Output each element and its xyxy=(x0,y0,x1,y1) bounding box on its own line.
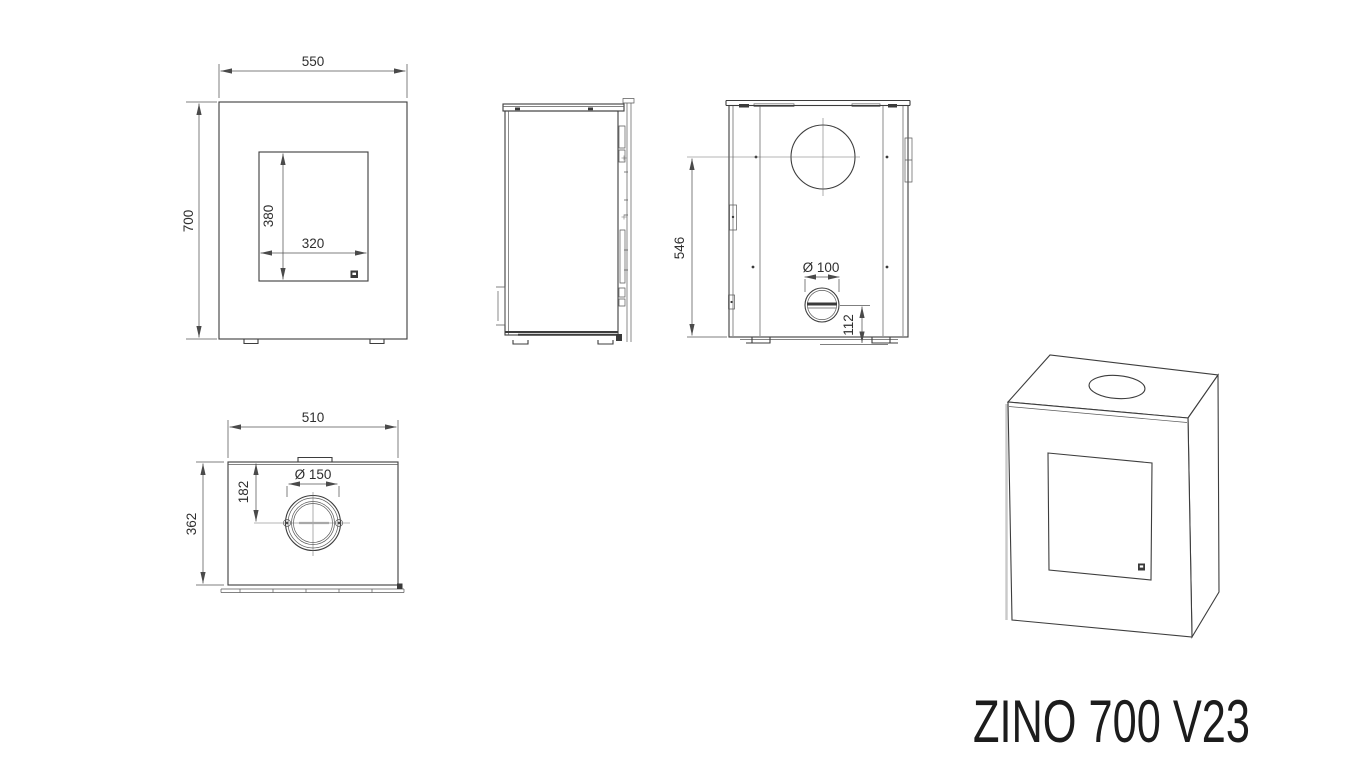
rear-546-dim-text: 546 xyxy=(672,237,687,260)
top-rear-tab xyxy=(298,458,332,463)
top-view: 510 362 182 Ø 150 xyxy=(184,410,404,593)
top-182-dim-text: 182 xyxy=(236,481,251,504)
rear-feet xyxy=(746,337,898,343)
front-view: 550 700 380 320 xyxy=(181,54,407,344)
persp-front-face xyxy=(1008,402,1192,637)
rear-port-dia-ext-lines xyxy=(805,279,839,292)
side-lever-housing xyxy=(496,287,505,325)
rear-bracket-screw xyxy=(732,216,734,218)
top-extension-lines xyxy=(196,420,398,585)
side-body-outline xyxy=(505,111,618,335)
top-base-plate xyxy=(221,589,404,593)
rear-panel-seams xyxy=(733,106,903,336)
side-center-marks xyxy=(622,156,627,220)
rear-bracket-screw2 xyxy=(730,301,732,303)
top-view-dimensions: 510 362 182 Ø 150 xyxy=(184,410,398,585)
rear-port-dia-text: Ø 100 xyxy=(803,260,840,275)
persp-right-face xyxy=(1188,375,1219,637)
front-view-dimensions: 550 700 380 320 xyxy=(181,54,407,339)
brand-logo-mark xyxy=(352,273,356,275)
top-width-dim-text: 510 xyxy=(302,410,325,425)
top-flue-dia-text: Ø 150 xyxy=(295,467,332,482)
rear-view: 546 Ø 100 112 xyxy=(672,101,912,345)
top-base-clip xyxy=(397,584,403,590)
glass-height-dim-text: 380 xyxy=(261,205,276,228)
drawing-sheet: 550 700 380 320 xyxy=(0,0,1372,772)
side-feet xyxy=(513,340,613,344)
rear-top-plate xyxy=(726,101,910,106)
side-top-screws xyxy=(515,108,593,111)
front-width-dim-text: 550 xyxy=(302,54,325,69)
persp-brand-logo-mark xyxy=(1140,565,1143,567)
rear-screw-dot-2 xyxy=(886,156,889,159)
glass-width-dim-text: 320 xyxy=(302,236,325,251)
top-depth-dim-text: 362 xyxy=(184,513,199,536)
perspective-view xyxy=(1007,355,1220,637)
side-rear-foot xyxy=(616,334,622,341)
rear-view-dimensions: 546 Ø 100 112 xyxy=(672,159,888,345)
rear-screw-dot-4 xyxy=(886,266,889,269)
front-body-outline xyxy=(219,102,407,339)
technical-drawing-canvas: 550 700 380 320 xyxy=(0,0,1372,772)
rear-left-brackets xyxy=(729,205,737,309)
rear-112-dim-text: 112 xyxy=(841,314,856,336)
rear-flue-centerlines xyxy=(687,118,860,196)
rear-body-outline xyxy=(729,106,908,338)
side-view xyxy=(496,99,634,345)
side-base-plate xyxy=(505,332,618,335)
rear-screw-dot-3 xyxy=(752,266,755,269)
model-title: ZINO 700 V23 xyxy=(973,688,1250,755)
front-feet xyxy=(244,339,384,344)
front-height-dim-text: 700 xyxy=(181,210,196,233)
side-top-plate xyxy=(503,104,624,111)
